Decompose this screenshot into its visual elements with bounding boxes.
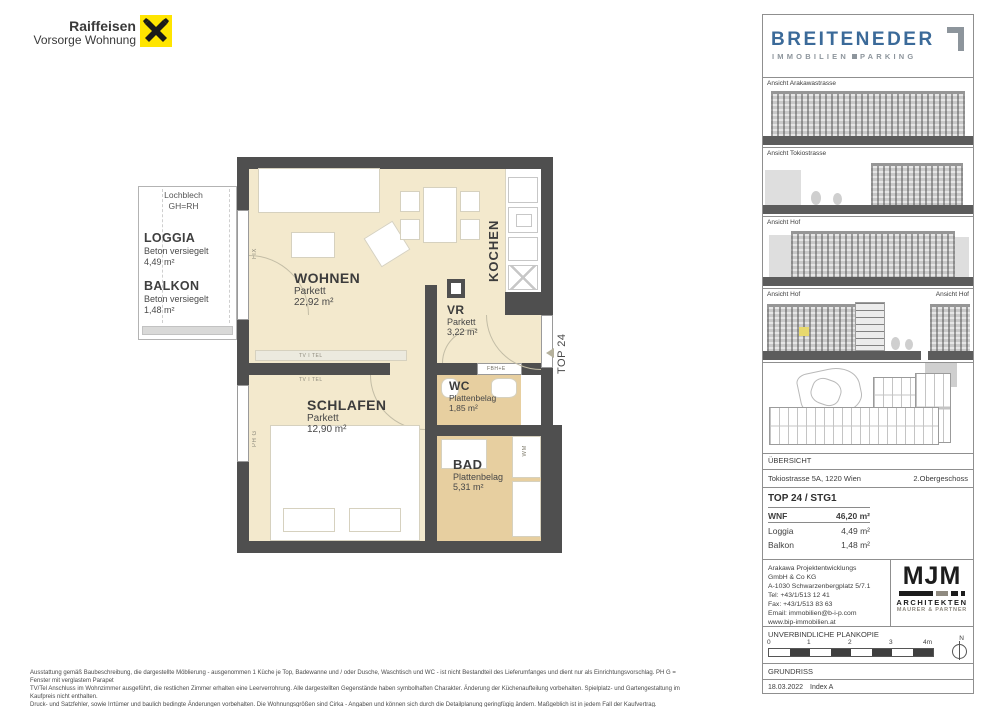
sofa — [258, 168, 380, 213]
unit-tag: TOP 24 — [556, 312, 568, 374]
kitchen-fridge — [508, 265, 538, 290]
room-label-wohnen: WOHNEN Parkett 22,92 m² — [294, 270, 360, 308]
wall — [553, 425, 562, 553]
chair — [400, 191, 420, 212]
building-elevation — [930, 304, 970, 351]
sidebar-panel: BREITENEDER IMMOBILIENPARKING Ansicht Ar… — [762, 14, 974, 694]
breiteneder-logo: BREITENEDER IMMOBILIENPARKING — [763, 15, 973, 77]
chair — [460, 219, 480, 240]
bed — [270, 425, 420, 541]
unit-title: TOP 24 / STG1 — [763, 488, 973, 507]
tree — [891, 337, 900, 350]
kitchen-unit — [508, 177, 538, 203]
label-tv-tel: TV I TEL — [299, 377, 323, 383]
wall — [425, 285, 437, 363]
pillow — [283, 508, 335, 532]
site-plan — [763, 362, 973, 453]
mjm-logo: MJM ARCHITEKTEN MAURER & PARTNER — [891, 560, 973, 626]
brand-tagline: Vorsorge Wohnung — [18, 34, 136, 48]
kitchen-sink — [508, 207, 538, 233]
pillar-shaft — [447, 279, 465, 298]
date-row: 18.03.2022 Index A — [763, 679, 973, 695]
raiffeisen-gable-cross-icon — [140, 15, 172, 47]
door-opening — [390, 363, 425, 375]
dining-table — [423, 187, 457, 243]
entrance-marker-icon — [546, 348, 554, 358]
logo-wordmark: BREITENEDER — [771, 29, 973, 51]
annex-note: Lochblech GH=RH — [139, 190, 228, 211]
plan-sheet: Raiffeisen Vorsorge Wohnung Lochblech GH… — [0, 0, 1000, 707]
area-row-balkon: Balkon 1,48 m² — [763, 537, 973, 551]
plan-date: 18.03.2022 — [763, 680, 803, 691]
window-schlafen — [237, 385, 249, 462]
room-label-vr: VR Parkett 3,22 m² — [447, 303, 478, 337]
bathtub — [512, 481, 541, 537]
mjm-bar-icon — [899, 591, 965, 596]
room-loggia: LOGGIA Beton versiegelt 4,49 m² — [144, 231, 209, 268]
wm-label: WM — [522, 445, 528, 457]
background-building — [765, 170, 801, 206]
room-balkon: BALKON Beton versiegelt 1,48 m² — [144, 279, 209, 316]
elevation-arakawastrasse: Ansicht Arakawastrasse — [763, 77, 973, 147]
room-label-bad: BAD Plattenbelag 5,31 m² — [453, 457, 503, 492]
ground-line — [763, 277, 973, 286]
overview-row: ÜBERSICHT — [763, 453, 973, 469]
building-elevation — [771, 91, 965, 137]
plancopy-label: UNVERBINDLICHE PLANKOPIE — [763, 627, 973, 639]
scale-bar — [768, 648, 934, 657]
entrance-opening — [541, 315, 553, 368]
washing-machine: WM — [512, 436, 541, 478]
floor-plan: WM WOHNEN Parkett 22,92 m² SCHLAFEN Park… — [237, 157, 553, 553]
tree — [833, 193, 842, 205]
ground-line — [763, 205, 973, 214]
developer-architect: Arakawa Projektentwicklungs GmbH & Co KG… — [763, 559, 973, 626]
tv-lowboard — [255, 350, 407, 361]
tree — [905, 339, 913, 350]
kitchen-stove — [508, 237, 538, 261]
chair — [400, 219, 420, 240]
window-balcony-door — [237, 210, 249, 320]
building-elevation — [791, 231, 955, 277]
area-row-wnf: WNF 46,20 m² — [763, 508, 973, 522]
ground-line — [763, 351, 921, 360]
room-label-schlafen: SCHLAFEN Parkett 12,90 m² — [307, 397, 386, 435]
ground-line — [763, 136, 973, 145]
chair — [460, 191, 480, 212]
tree — [811, 191, 821, 205]
dashed-line — [229, 189, 230, 323]
plan-index: Index A — [805, 680, 833, 691]
label-ph-g: PH G — [252, 407, 258, 447]
north-label: N — [959, 635, 964, 642]
area-row-loggia: Loggia 4,49 m² — [763, 523, 973, 537]
corner-bracket-icon — [947, 27, 964, 51]
coffee-table — [291, 232, 335, 258]
address: Tokiostrasse 5A, 1220 Wien — [768, 474, 861, 483]
shaft — [521, 375, 541, 425]
label-tv-tel: TV I TEL — [299, 353, 323, 359]
wall — [505, 292, 541, 315]
building-elevation — [767, 304, 855, 351]
brand-name: Raiffeisen — [18, 18, 136, 34]
plan-type-row: GRUNDRISS — [763, 663, 973, 679]
logo-subtitle: IMMOBILIENPARKING — [772, 52, 973, 61]
label-fbh-e: FBH+E — [487, 366, 506, 372]
ground-line — [928, 351, 973, 360]
unit-info: TOP 24 / STG1 WNF 46,20 m² Loggia 4,49 m… — [763, 487, 973, 559]
annex-loggia-balkon: Lochblech GH=RH LOGGIA Beton versiegelt … — [138, 186, 237, 340]
elevation-tokiostrasse: Ansicht Tokiostrasse — [763, 147, 973, 216]
developer-info: Arakawa Projektentwicklungs GmbH & Co KG… — [763, 560, 891, 626]
section-cut — [855, 302, 885, 351]
side-wing — [955, 237, 969, 277]
address-row: Tokiostrasse 5A, 1220 Wien 2.Obergeschos… — [763, 469, 973, 487]
main-building-plan — [769, 407, 939, 445]
building-elevation — [871, 163, 963, 206]
label-fix: FIX — [252, 219, 258, 259]
plancopy-scale: UNVERBINDLICHE PLANKOPIE 0 1 2 3 4m N — [763, 626, 973, 663]
balcony-edge — [142, 326, 233, 335]
unit-highlight — [799, 327, 809, 336]
room-label-kochen: KOCHEN — [486, 172, 501, 282]
pillow — [349, 508, 401, 532]
elevation-hof-2: Ansicht Hof Ansicht Hof — [763, 288, 973, 362]
elevation-hof-1: Ansicht Hof — [763, 216, 973, 288]
floor-level: 2.Obergeschoss — [913, 474, 968, 483]
north-compass-icon — [952, 644, 967, 659]
room-label-wc: WC Plattenbelag 1,85 m² — [449, 379, 496, 413]
side-wing — [769, 235, 791, 277]
square-icon — [852, 54, 857, 59]
raiffeisen-brand: Raiffeisen Vorsorge Wohnung — [18, 18, 136, 48]
disclaimer: Ausstattung gemäß Baubeschreibung, die d… — [30, 669, 690, 707]
